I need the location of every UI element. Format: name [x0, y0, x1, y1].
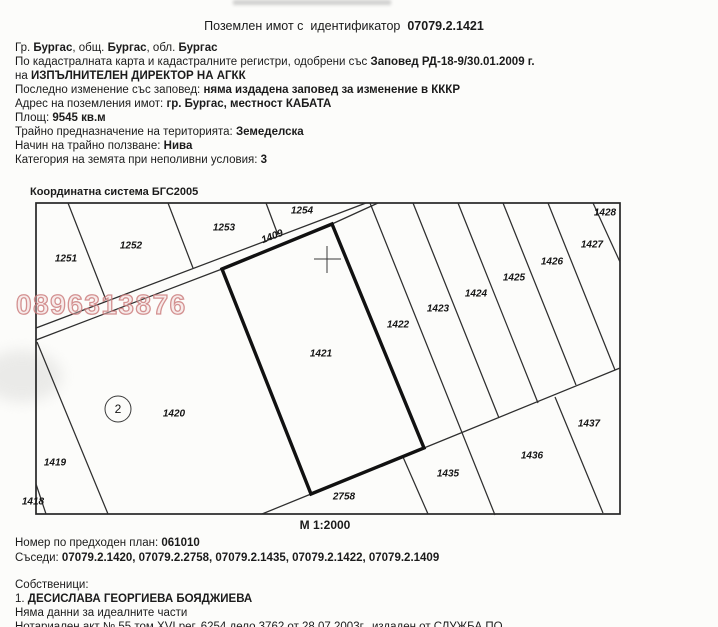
left-parcel-dividers: [36, 342, 108, 514]
parcel-label-1436: 1436: [521, 451, 544, 462]
parcel-label-1437: 1437: [578, 419, 601, 430]
diagonal-right-segment: [424, 368, 620, 448]
parcel-label-1424: 1424: [465, 289, 488, 300]
parcel-label-1418: 1418: [22, 497, 45, 508]
parcel-label-1435: 1435: [437, 469, 460, 480]
upper-parcel-dividers: [68, 203, 278, 300]
boundary-line-1424-1425: [458, 203, 538, 403]
point-cross-marker: [314, 246, 341, 273]
map-scale-label: М 1:2000: [0, 518, 650, 532]
parcel-label-1419: 1419: [44, 458, 67, 469]
parcel-label-1423: 1423: [427, 304, 450, 315]
parcel-label-1425: 1425: [503, 273, 526, 284]
parcel-label-2758: 2758: [332, 492, 356, 503]
parcel-label-1254: 1254: [291, 206, 314, 217]
diagonal-left-segment: [262, 494, 311, 514]
parcel-label-1421: 1421: [310, 349, 333, 360]
parcel-label-1253: 1253: [213, 223, 236, 234]
zone-circle-label: 2: [115, 402, 122, 416]
boundary-line-1425-1426: [503, 203, 576, 385]
footer-line: Номер по предходен план: 061010: [15, 536, 439, 551]
parcel-labels: 1251125212531254140914211420141914181422…: [22, 206, 617, 508]
bottom-parcel-dividers: [403, 397, 603, 514]
parcel-label-1427: 1427: [581, 240, 604, 251]
boundary-line-2758-1435: [403, 457, 428, 514]
parcel-label-1251: 1251: [55, 254, 78, 265]
parcel-label-1252: 1252: [120, 241, 143, 252]
parcel-label-1426: 1426: [541, 257, 564, 268]
watermark-phone: 0896313876: [16, 289, 187, 321]
footer-line: 1. ДЕСИСЛАВА ГЕОРГИЕВА БОЯДЖИЕВА: [15, 592, 503, 606]
boundary-line-1436-1437: [555, 397, 603, 513]
parcel-label-1428: 1428: [594, 208, 617, 219]
footer-line: Нотариален акт № 55 том XVI рег. 6254 де…: [15, 620, 503, 627]
boundary-line-1419-1420: [37, 342, 108, 514]
footer-line: Няма данни за идеалните части: [15, 606, 503, 620]
parcel-label-1420: 1420: [163, 409, 186, 420]
footer-line: Собственици:: [15, 578, 503, 592]
plan-and-neighbours-block: Номер по предходен план: 061010Съседи: 0…: [15, 536, 439, 565]
boundary-line-1252-1253: [168, 203, 193, 268]
footer-line: Съседи: 07079.2.1420, 07079.2.2758, 0707…: [15, 551, 439, 566]
parcel-label-1422: 1422: [387, 320, 410, 331]
owners-block: Собственици:1. ДЕСИСЛАВА ГЕОРГИЕВА БОЯДЖ…: [15, 578, 503, 627]
boundary-line-1251-1252: [68, 203, 106, 300]
cadastral-sketch-page: Поземлен имот с идентификатор 07079.2.14…: [0, 0, 718, 627]
